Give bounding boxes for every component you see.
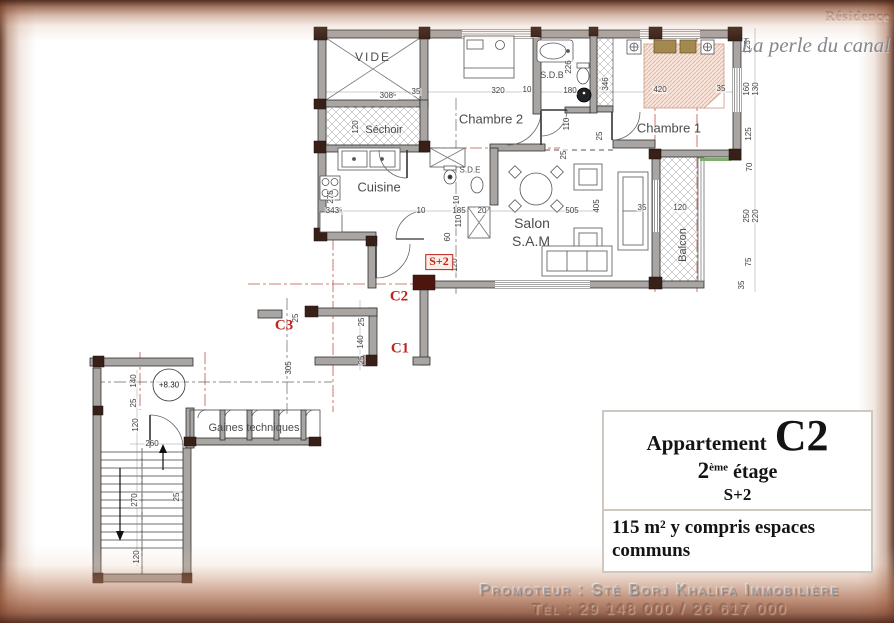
- floor-line: 2ème étage: [608, 458, 867, 484]
- phone-line: Tél : 29 148 000 / 26 617 000: [430, 601, 890, 618]
- info-box-top: Appartement C2 2ème étage S+2: [604, 412, 871, 509]
- brand-tagline: La perle du canal: [730, 33, 890, 58]
- brand-watermark: Résidence: [800, 9, 890, 25]
- basin-sdb: [577, 88, 591, 102]
- stairs: [101, 444, 183, 574]
- dining-table: [520, 173, 552, 205]
- level-mark-circle: [153, 369, 185, 401]
- green-planter: [700, 158, 732, 161]
- toilet-sde: [444, 166, 456, 170]
- floor-number: 2: [698, 458, 710, 483]
- floor-plan-page: VIDESéchoirChambre 2S.D.BChambre 1Cuisin…: [0, 0, 894, 623]
- apartment-unit: C2: [775, 417, 829, 454]
- basin-sde: [471, 177, 483, 193]
- area-text: 115 m² y compris espaces communs: [604, 509, 871, 571]
- balcony-hatch: [660, 157, 698, 281]
- promoter-line: Promoteur : Sté Borj Khalifa Immobilière: [430, 582, 890, 600]
- kitchen-cabinet: [320, 212, 342, 232]
- closet-strip: [597, 35, 613, 106]
- apartment-title: Appartement: [647, 431, 767, 456]
- floor-ordinal: ème: [709, 461, 728, 473]
- toilet-sdb: [577, 63, 589, 68]
- sechoir-hatch: [326, 107, 420, 145]
- apartment-info-box: Appartement C2 2ème étage S+2 115 m² y c…: [602, 410, 873, 573]
- floor-label: étage: [733, 461, 777, 483]
- scheme-label: S+2: [608, 485, 867, 505]
